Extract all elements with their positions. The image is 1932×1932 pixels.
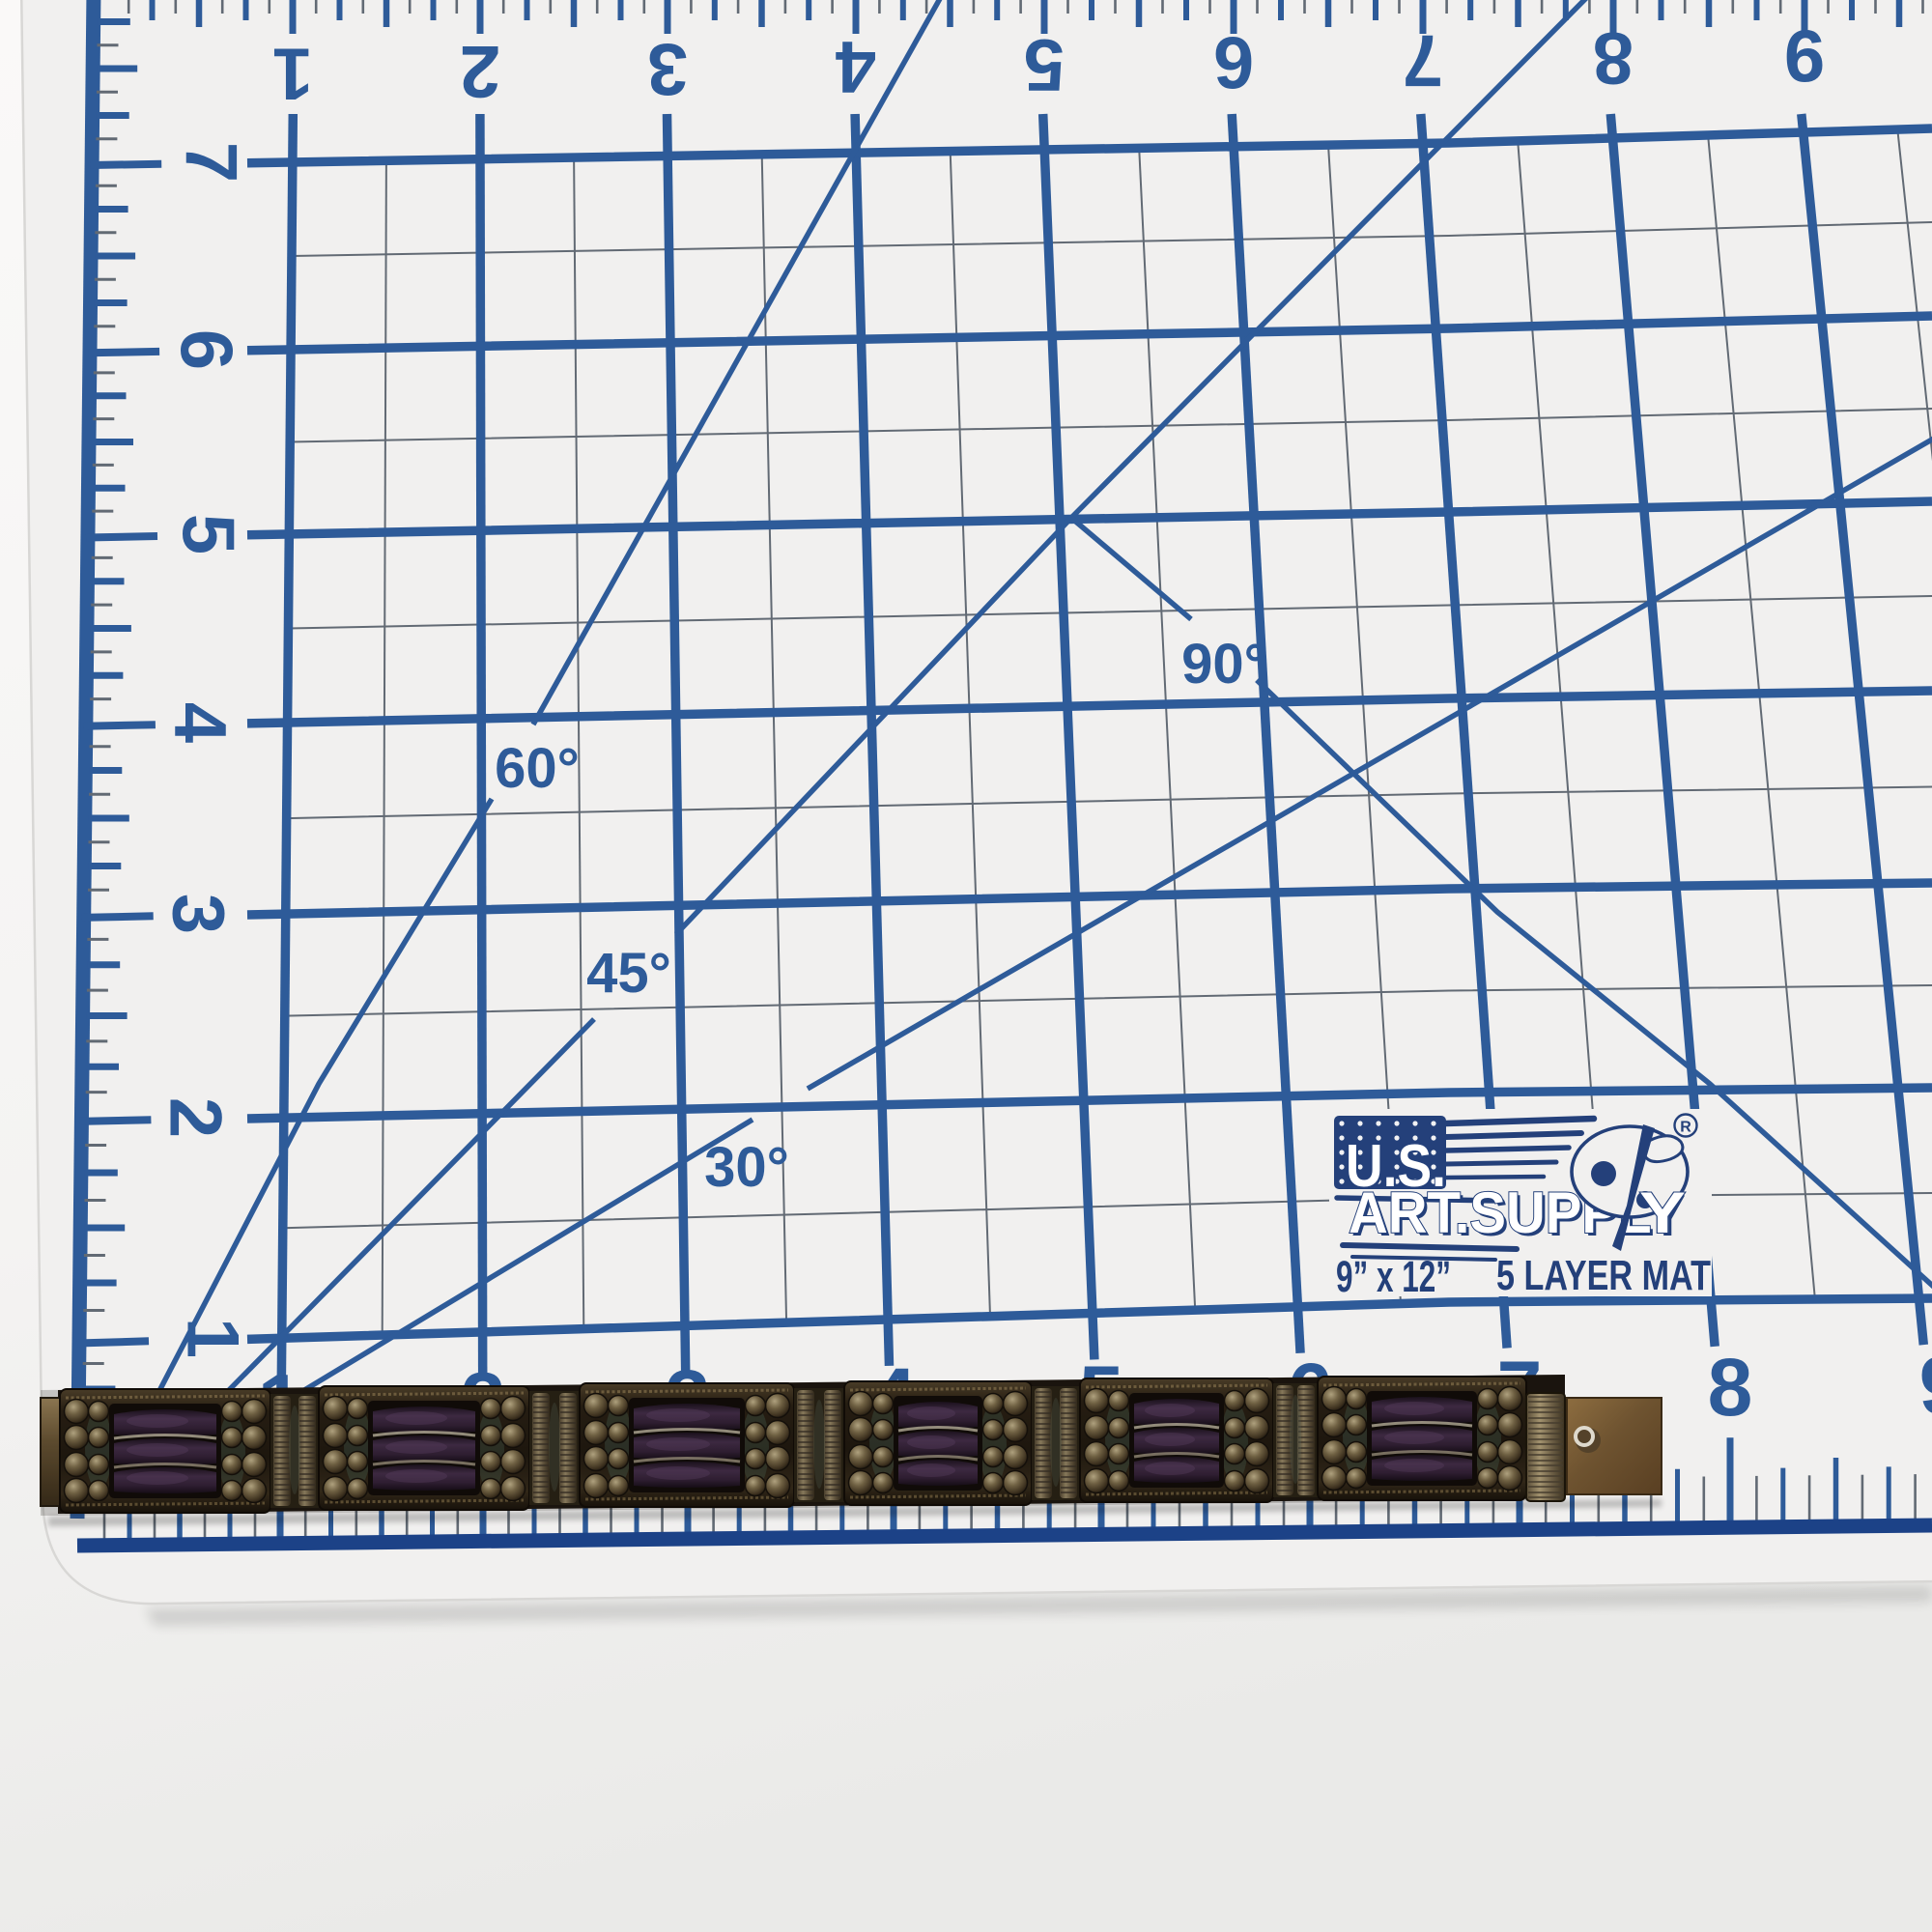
svg-text:4: 4	[836, 25, 876, 107]
svg-text:4: 4	[159, 702, 241, 743]
svg-text:7: 7	[170, 142, 252, 183]
svg-text:90°: 90°	[1181, 633, 1266, 696]
svg-text:3: 3	[647, 28, 688, 110]
svg-text:45°: 45°	[586, 942, 671, 1005]
svg-text:Y: Y	[1639, 1180, 1686, 1245]
svg-text:60°: 60°	[495, 737, 580, 800]
svg-text:9” x 12”: 9” x 12”	[1336, 1252, 1451, 1301]
svg-text:6: 6	[165, 329, 247, 370]
svg-text:R: R	[1680, 1120, 1691, 1136]
svg-text:7: 7	[1403, 18, 1443, 100]
svg-text:5: 5	[1024, 23, 1065, 105]
svg-text:8: 8	[1593, 16, 1634, 99]
svg-text:9: 9	[1919, 1340, 1932, 1431]
svg-text:2: 2	[155, 1097, 237, 1138]
svg-text:1: 1	[272, 33, 313, 115]
svg-text:3: 3	[157, 894, 240, 934]
svg-text:30°: 30°	[704, 1136, 789, 1199]
svg-text:8: 8	[1708, 1342, 1753, 1433]
svg-text:5 LAYER MAT: 5 LAYER MAT	[1496, 1252, 1711, 1299]
svg-text:9: 9	[1784, 14, 1825, 97]
svg-text:2: 2	[460, 30, 500, 112]
svg-text:5: 5	[167, 514, 249, 554]
svg-text:1: 1	[172, 1318, 254, 1358]
svg-text:6: 6	[1213, 21, 1254, 103]
